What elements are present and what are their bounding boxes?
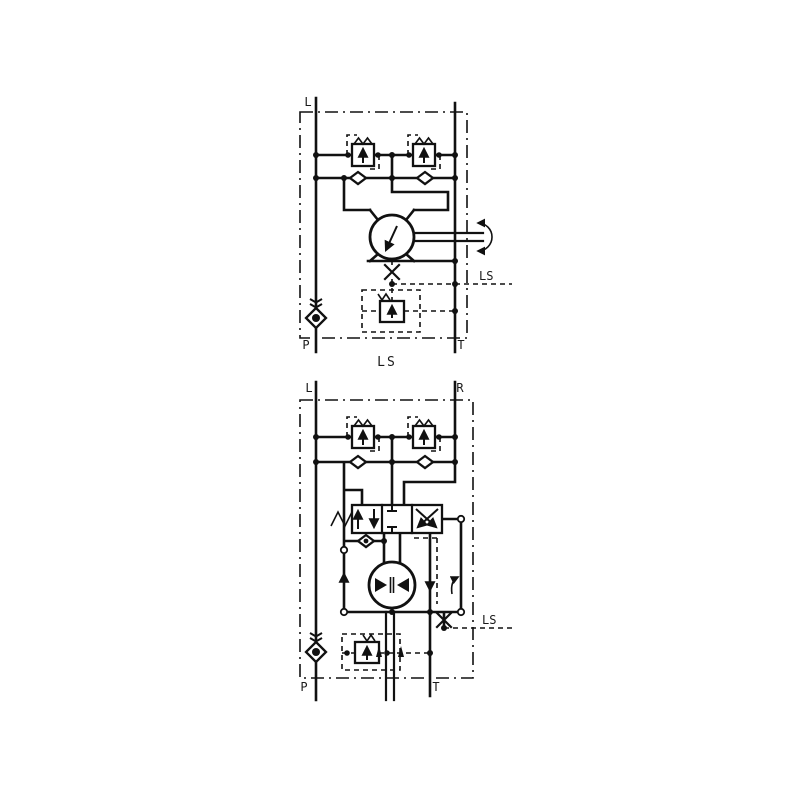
- port-relief-valve-right: [406, 417, 442, 451]
- schematic-page: L LS P T LS: [0, 0, 800, 800]
- port-relief-valve-left: [345, 417, 381, 451]
- check-valve-left: [350, 456, 366, 468]
- port-label-r: R: [456, 381, 464, 395]
- port-label-t: T: [457, 338, 464, 352]
- motor-section-diagram: L LS P T LS: [300, 95, 512, 370]
- ls-line-label: LS: [482, 613, 496, 627]
- inlet-check-valve: [306, 299, 326, 328]
- internal-check-valve: [358, 535, 374, 547]
- pilot-lines: [414, 538, 437, 604]
- port-label-l: L: [304, 95, 311, 109]
- output-shaft: [413, 233, 483, 241]
- pilot-relief-assembly: [362, 290, 455, 332]
- check-valve-right: [417, 172, 433, 184]
- steering-unit-diagram: L R LS P T: [300, 381, 512, 700]
- bidirectional-rotation-arrow: [478, 223, 492, 251]
- check-valve-left: [350, 172, 366, 184]
- port-relief-valve-left: [345, 135, 381, 169]
- steering-column-link: [376, 612, 404, 700]
- port-relief-valve-right: [406, 135, 442, 169]
- port-label-t: T: [432, 680, 439, 694]
- hydraulic-schematic-canvas: L LS P T LS: [0, 0, 800, 800]
- port-label-p: P: [302, 338, 309, 352]
- ls-plug-icon: [385, 265, 399, 279]
- check-valve-right: [417, 456, 433, 468]
- centering-spring: [331, 512, 352, 526]
- diagram-caption: LS: [377, 355, 397, 370]
- suction-arrow: [452, 577, 458, 594]
- port-label-l: L: [305, 381, 312, 395]
- port-label-p: P: [300, 680, 307, 694]
- gerotor-metering-unit: [369, 562, 415, 608]
- ls-line-label: LS: [479, 269, 493, 283]
- inlet-check-valve: [306, 633, 326, 662]
- directional-control-valve: [331, 505, 442, 533]
